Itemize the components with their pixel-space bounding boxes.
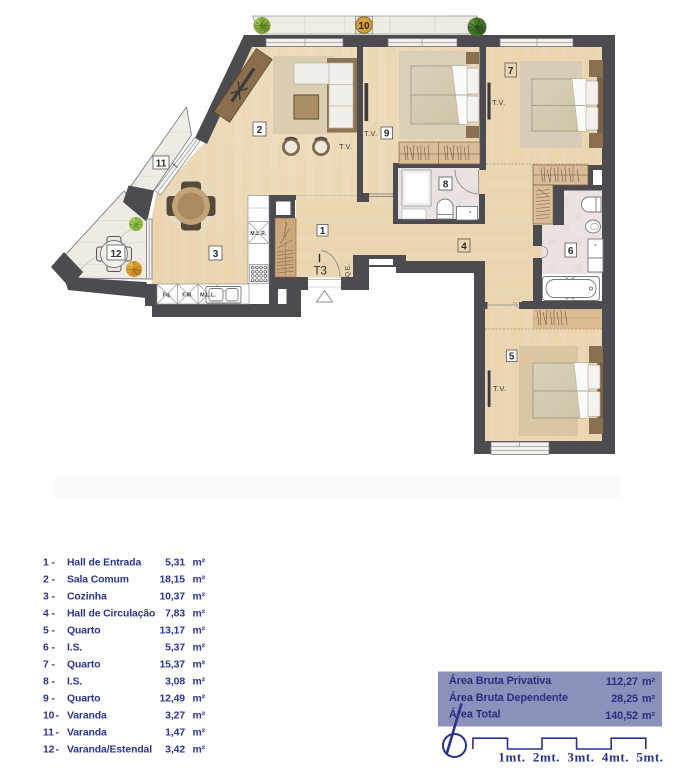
svg-text:Fq.: Fq. <box>163 293 172 299</box>
svg-text:3: 3 <box>213 249 219 260</box>
svg-text:m²: m² <box>193 745 206 756</box>
svg-text:2: 2 <box>43 575 49 586</box>
svg-text:5,31: 5,31 <box>165 558 185 569</box>
svg-text:5: 5 <box>509 352 515 363</box>
svg-text:Varanda/Estendal: Varanda/Estendal <box>67 745 152 756</box>
svg-text:Varanda: Varanda <box>67 711 107 722</box>
svg-text:I.S.: I.S. <box>67 643 82 654</box>
svg-text:M.L.L.: M.L.L. <box>200 293 216 299</box>
svg-text:I.S.: I.S. <box>67 677 82 688</box>
svg-text:T.V.: T.V. <box>364 129 377 138</box>
svg-text:T.V.: T.V. <box>339 142 352 151</box>
svg-text:5mt.: 5mt. <box>636 750 663 765</box>
svg-text:9: 9 <box>43 694 49 705</box>
svg-text:13,17: 13,17 <box>159 626 185 637</box>
svg-text:6: 6 <box>568 246 574 257</box>
svg-text:1: 1 <box>43 558 49 569</box>
svg-text:3,27: 3,27 <box>165 711 185 722</box>
svg-text:3: 3 <box>43 592 49 603</box>
svg-text:Quarto: Quarto <box>67 660 100 671</box>
svg-text:m²: m² <box>193 711 206 722</box>
svg-text:5,37: 5,37 <box>165 643 185 654</box>
svg-text:18,15: 18,15 <box>159 575 185 586</box>
svg-text:10,37: 10,37 <box>159 592 185 603</box>
svg-text:Varanda: Varanda <box>67 728 107 739</box>
svg-text:140,52: 140,52 <box>605 710 638 722</box>
svg-text:m²: m² <box>193 609 206 620</box>
svg-text:3,08: 3,08 <box>165 677 185 688</box>
svg-text:m²: m² <box>193 626 206 637</box>
svg-text:m²: m² <box>193 694 206 705</box>
svg-text:T3: T3 <box>314 266 327 278</box>
svg-text:m²: m² <box>193 558 206 569</box>
svg-text:10: 10 <box>43 711 55 722</box>
svg-text:7,83: 7,83 <box>165 609 185 620</box>
svg-text:4: 4 <box>43 609 49 620</box>
svg-text:9: 9 <box>384 129 390 140</box>
svg-text:m²: m² <box>193 677 206 688</box>
svg-text:112,27: 112,27 <box>606 676 638 688</box>
svg-text:5: 5 <box>43 626 49 637</box>
svg-text:6: 6 <box>43 643 49 654</box>
svg-text:T.V.: T.V. <box>493 384 506 393</box>
svg-text:3,42: 3,42 <box>165 745 185 756</box>
svg-text:m²: m² <box>193 660 206 671</box>
svg-text:11: 11 <box>43 728 54 739</box>
svg-text:7: 7 <box>43 660 49 671</box>
svg-text:2mt.: 2mt. <box>533 750 560 765</box>
svg-text:1mt.: 1mt. <box>498 750 525 765</box>
svg-text:Sala Comum: Sala Comum <box>67 575 129 586</box>
svg-text:m²: m² <box>642 710 656 722</box>
svg-text:Q.E.: Q.E. <box>345 264 352 277</box>
svg-text:m²: m² <box>193 592 206 603</box>
svg-text:m²: m² <box>642 693 656 705</box>
svg-text:Cozinha: Cozinha <box>67 592 107 603</box>
svg-text:4mt.: 4mt. <box>602 750 629 765</box>
svg-text:11: 11 <box>156 158 167 169</box>
svg-text:Quarto: Quarto <box>67 694 100 705</box>
svg-text:12,49: 12,49 <box>159 694 185 705</box>
svg-text:Quarto: Quarto <box>67 626 100 637</box>
svg-text:7: 7 <box>508 66 514 77</box>
svg-text:Área Bruta Privativa: Área Bruta Privativa <box>449 674 552 687</box>
svg-text:4: 4 <box>461 241 467 252</box>
svg-text:m²: m² <box>642 676 656 688</box>
svg-text:m²: m² <box>193 643 206 654</box>
svg-text:15,37: 15,37 <box>159 660 185 671</box>
svg-text:2: 2 <box>257 125 263 136</box>
svg-text:Hall de Entrada: Hall de Entrada <box>67 558 141 569</box>
svg-text:12: 12 <box>43 745 55 756</box>
svg-text:F.M.: F.M. <box>182 293 193 299</box>
svg-text:8: 8 <box>443 179 449 190</box>
svg-text:1: 1 <box>320 226 326 237</box>
svg-text:1,47: 1,47 <box>165 728 185 739</box>
svg-text:m²: m² <box>193 575 206 586</box>
svg-text:28,25: 28,25 <box>611 693 638 705</box>
svg-text:10: 10 <box>358 21 370 32</box>
svg-text:T.V.: T.V. <box>492 98 505 107</box>
svg-text:Área Bruta Dependente: Área Bruta Dependente <box>449 691 568 704</box>
svg-text:m²: m² <box>193 728 206 739</box>
svg-text:Hall de Circulação: Hall de Circulação <box>67 609 155 620</box>
svg-text:M.L.R.: M.L.R. <box>250 231 267 237</box>
svg-text:12: 12 <box>110 249 122 260</box>
svg-text:3mt.: 3mt. <box>567 750 594 765</box>
svg-text:8: 8 <box>43 677 49 688</box>
